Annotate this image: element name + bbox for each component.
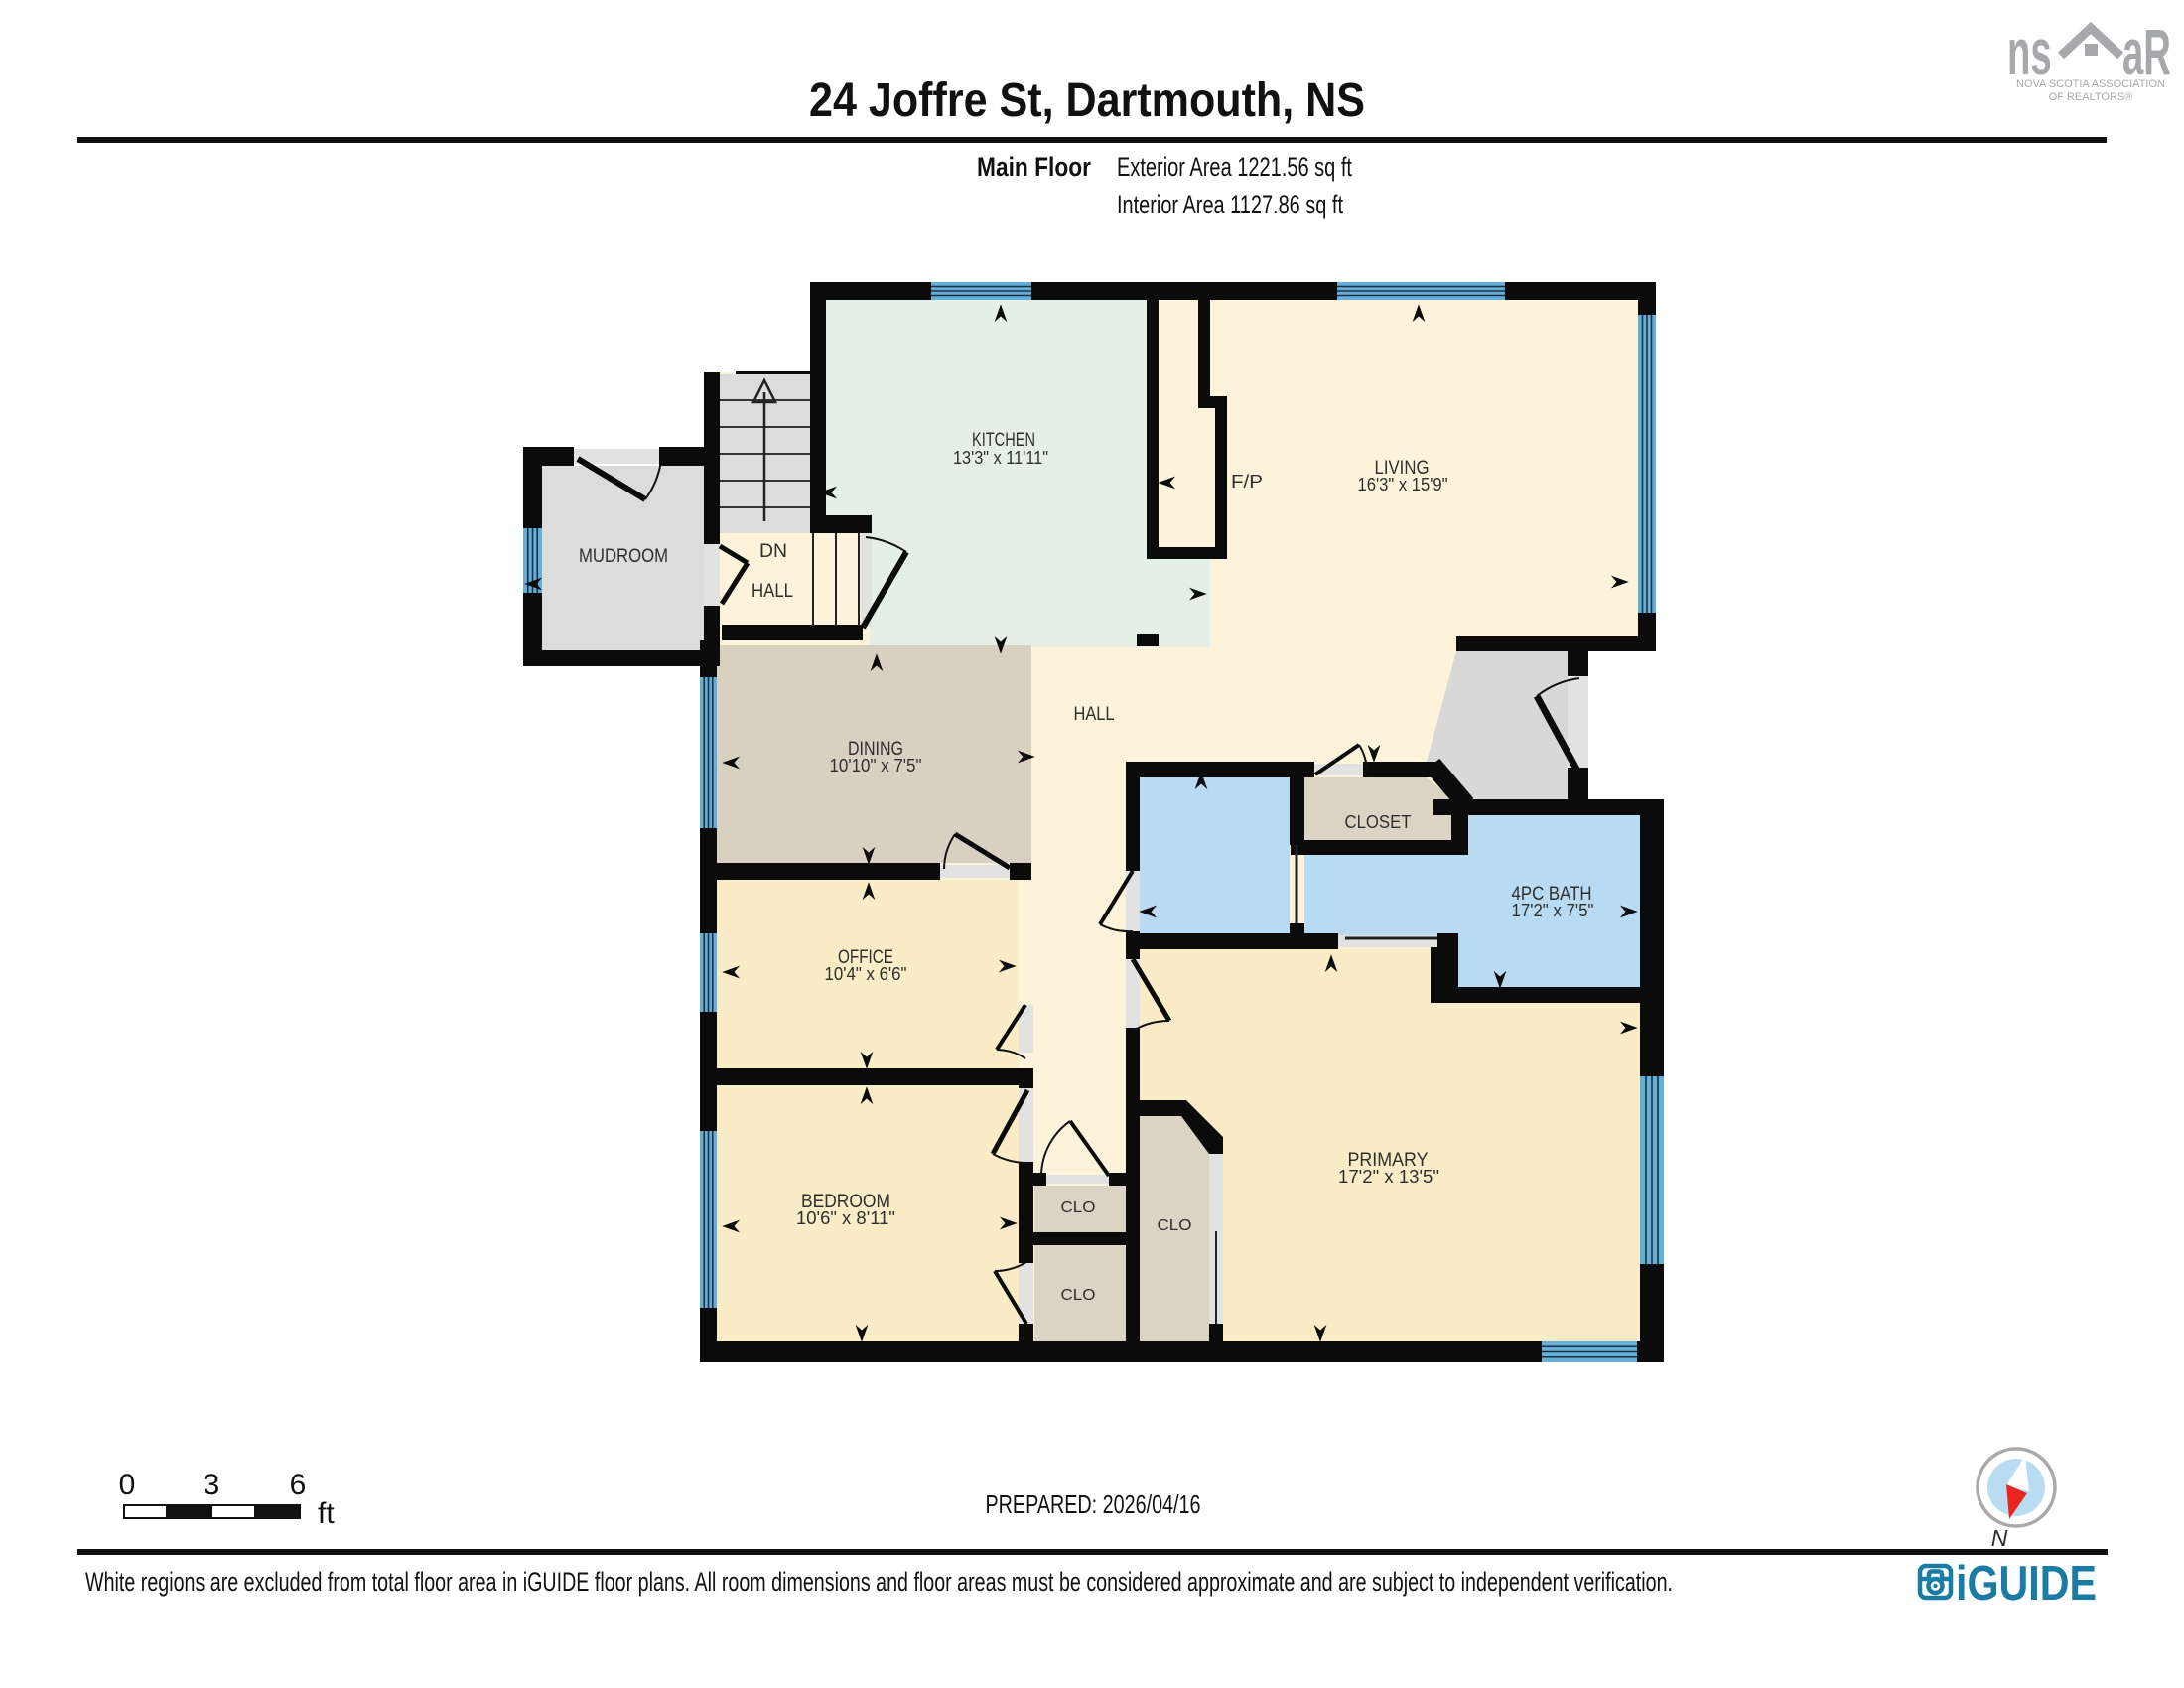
svg-text:NOVA SCOTIA ASSOCIATION: NOVA SCOTIA ASSOCIATION bbox=[2016, 78, 2165, 90]
svg-text:N: N bbox=[1991, 1525, 2008, 1551]
svg-text:CLO: CLO bbox=[1061, 1287, 1096, 1304]
svg-text:17'2" x 13'5": 17'2" x 13'5" bbox=[1338, 1167, 1439, 1187]
svg-text:CLOSET: CLOSET bbox=[1345, 812, 1412, 832]
svg-text:CLO: CLO bbox=[1061, 1199, 1096, 1216]
svg-text:iGUIDE: iGUIDE bbox=[1956, 1557, 2097, 1611]
svg-text:16'3" x 15'9": 16'3" x 15'9" bbox=[1358, 475, 1448, 494]
svg-text:10'6" x 8'11": 10'6" x 8'11" bbox=[796, 1208, 895, 1228]
svg-text:10'4" x 6'6": 10'4" x 6'6" bbox=[825, 964, 907, 984]
svg-text:10'10" x 7'5": 10'10" x 7'5" bbox=[830, 756, 922, 775]
svg-text:ft: ft bbox=[318, 1497, 335, 1530]
svg-text:13'3" x 11'11": 13'3" x 11'11" bbox=[953, 448, 1048, 468]
svg-text:0: 0 bbox=[119, 1469, 136, 1501]
svg-text:DN: DN bbox=[759, 541, 787, 562]
svg-text:HALL: HALL bbox=[751, 581, 793, 602]
svg-text:17'2" x 7'5": 17'2" x 7'5" bbox=[1512, 901, 1594, 920]
svg-text:F/P: F/P bbox=[1231, 472, 1263, 492]
svg-text:CLO: CLO bbox=[1158, 1217, 1192, 1234]
svg-text:White regions are excluded fro: White regions are excluded from total fl… bbox=[85, 1567, 1673, 1597]
svg-text:MUDROOM: MUDROOM bbox=[579, 546, 668, 567]
svg-text:HALL: HALL bbox=[1074, 704, 1115, 725]
svg-text:Exterior Area 1221.56 sq ft: Exterior Area 1221.56 sq ft bbox=[1117, 152, 1352, 182]
svg-text:OF REALTORS®: OF REALTORS® bbox=[2049, 91, 2133, 103]
svg-text:6: 6 bbox=[290, 1469, 307, 1501]
svg-text:PREPARED: 2026/04/16: PREPARED: 2026/04/16 bbox=[986, 1489, 1201, 1519]
svg-text:3: 3 bbox=[204, 1469, 220, 1501]
svg-text:Main Floor: Main Floor bbox=[977, 152, 1091, 182]
svg-text:Interior Area 1127.86 sq ft: Interior Area 1127.86 sq ft bbox=[1117, 190, 1343, 219]
svg-text:24 Joffre St, Dartmouth, NS: 24 Joffre St, Dartmouth, NS bbox=[809, 74, 1365, 127]
